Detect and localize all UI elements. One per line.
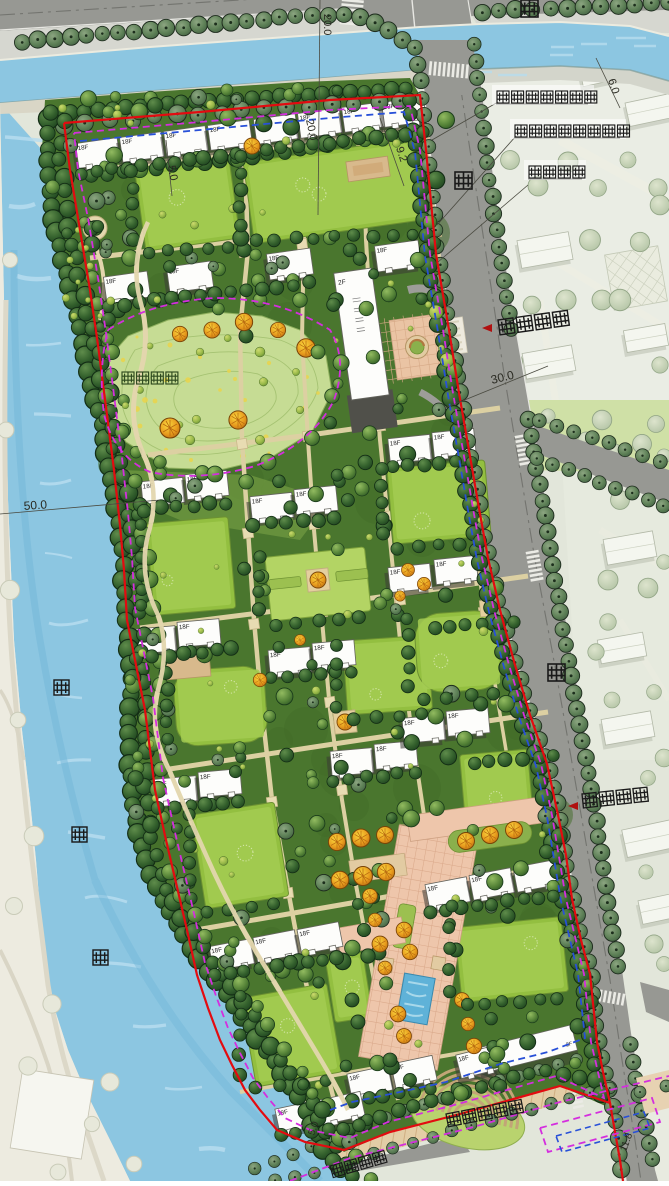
svg-text:50.0: 50.0	[23, 497, 48, 513]
svg-text:18F: 18F	[404, 719, 415, 727]
svg-text:18F: 18F	[376, 246, 388, 254]
svg-text:18F: 18F	[121, 138, 133, 146]
svg-text:18F: 18F	[390, 568, 402, 576]
svg-text:18F: 18F	[296, 490, 308, 498]
svg-text:18F: 18F	[434, 433, 446, 441]
svg-text:18F: 18F	[179, 623, 190, 631]
svg-text:18F: 18F	[252, 497, 264, 505]
svg-text:18F: 18F	[332, 752, 343, 760]
svg-text:18F: 18F	[436, 560, 448, 568]
svg-text:18F: 18F	[105, 277, 117, 285]
svg-text:18F: 18F	[376, 745, 387, 753]
svg-text:18F: 18F	[200, 773, 211, 781]
svg-text:18F: 18F	[77, 144, 89, 152]
svg-text:18F: 18F	[448, 712, 459, 720]
svg-text:18F: 18F	[209, 126, 221, 134]
svg-text:18F: 18F	[390, 439, 402, 447]
svg-text:20.0: 20.0	[321, 14, 333, 35]
svg-text:18F: 18F	[314, 644, 325, 652]
svg-text:2F: 2F	[338, 279, 347, 287]
